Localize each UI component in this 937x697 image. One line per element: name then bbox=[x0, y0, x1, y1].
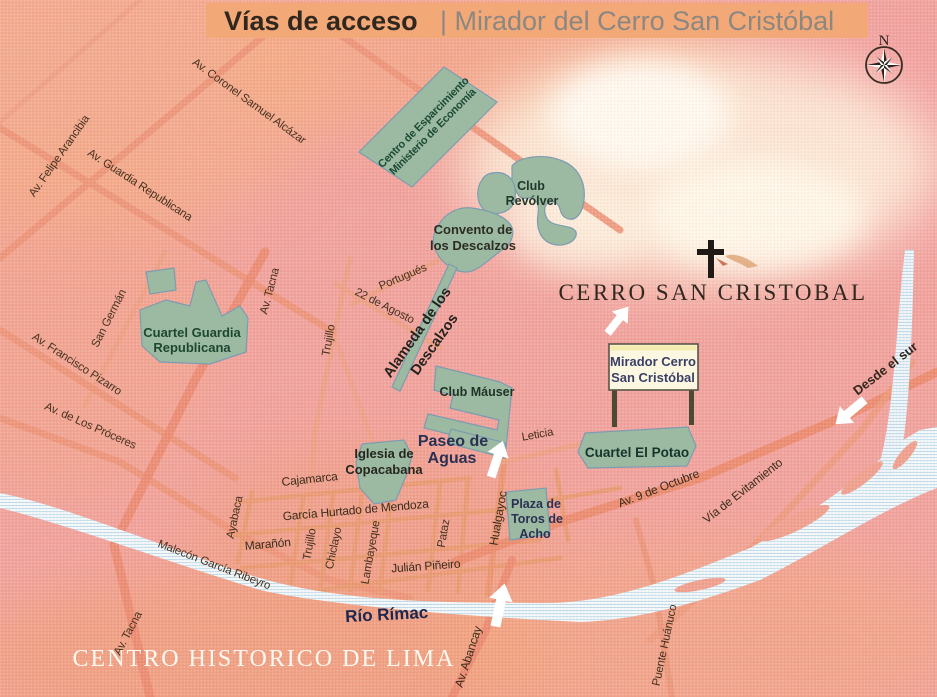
svg-text:Aguas: Aguas bbox=[428, 450, 477, 467]
svg-text:Vías de acceso: Vías de acceso bbox=[224, 6, 418, 36]
svg-text:Revólver: Revólver bbox=[506, 194, 559, 208]
svg-text:Convento de: Convento de bbox=[434, 222, 513, 237]
svg-text:Iglesia de: Iglesia de bbox=[354, 446, 413, 461]
svg-text:Cuartel El Potao: Cuartel El Potao bbox=[585, 445, 689, 460]
svg-text:los Descalzos: los Descalzos bbox=[430, 238, 516, 253]
svg-text:N: N bbox=[879, 33, 890, 49]
svg-text:Paseo de: Paseo de bbox=[418, 433, 488, 450]
svg-text:Club Máuser: Club Máuser bbox=[439, 385, 514, 399]
svg-text:Mirador Cerro: Mirador Cerro bbox=[610, 354, 696, 369]
svg-text:| Mirador del Cerro San Cristó: | Mirador del Cerro San Cristóbal bbox=[440, 6, 834, 36]
svg-text:Toros de: Toros de bbox=[511, 512, 563, 526]
svg-text:CENTRO HISTORICO DE LIMA: CENTRO HISTORICO DE LIMA bbox=[73, 646, 456, 672]
svg-text:Cuartel Guardia: Cuartel Guardia bbox=[143, 325, 241, 340]
svg-text:Republicana: Republicana bbox=[153, 340, 231, 355]
svg-text:Plaza de: Plaza de bbox=[511, 497, 561, 511]
svg-text:CERRO SAN CRISTOBAL: CERRO SAN CRISTOBAL bbox=[558, 280, 867, 305]
svg-text:Acho: Acho bbox=[519, 527, 551, 541]
svg-text:San Cristóbal: San Cristóbal bbox=[611, 370, 695, 385]
svg-text:Club: Club bbox=[517, 179, 545, 193]
svg-text:Copacabana: Copacabana bbox=[345, 462, 423, 477]
